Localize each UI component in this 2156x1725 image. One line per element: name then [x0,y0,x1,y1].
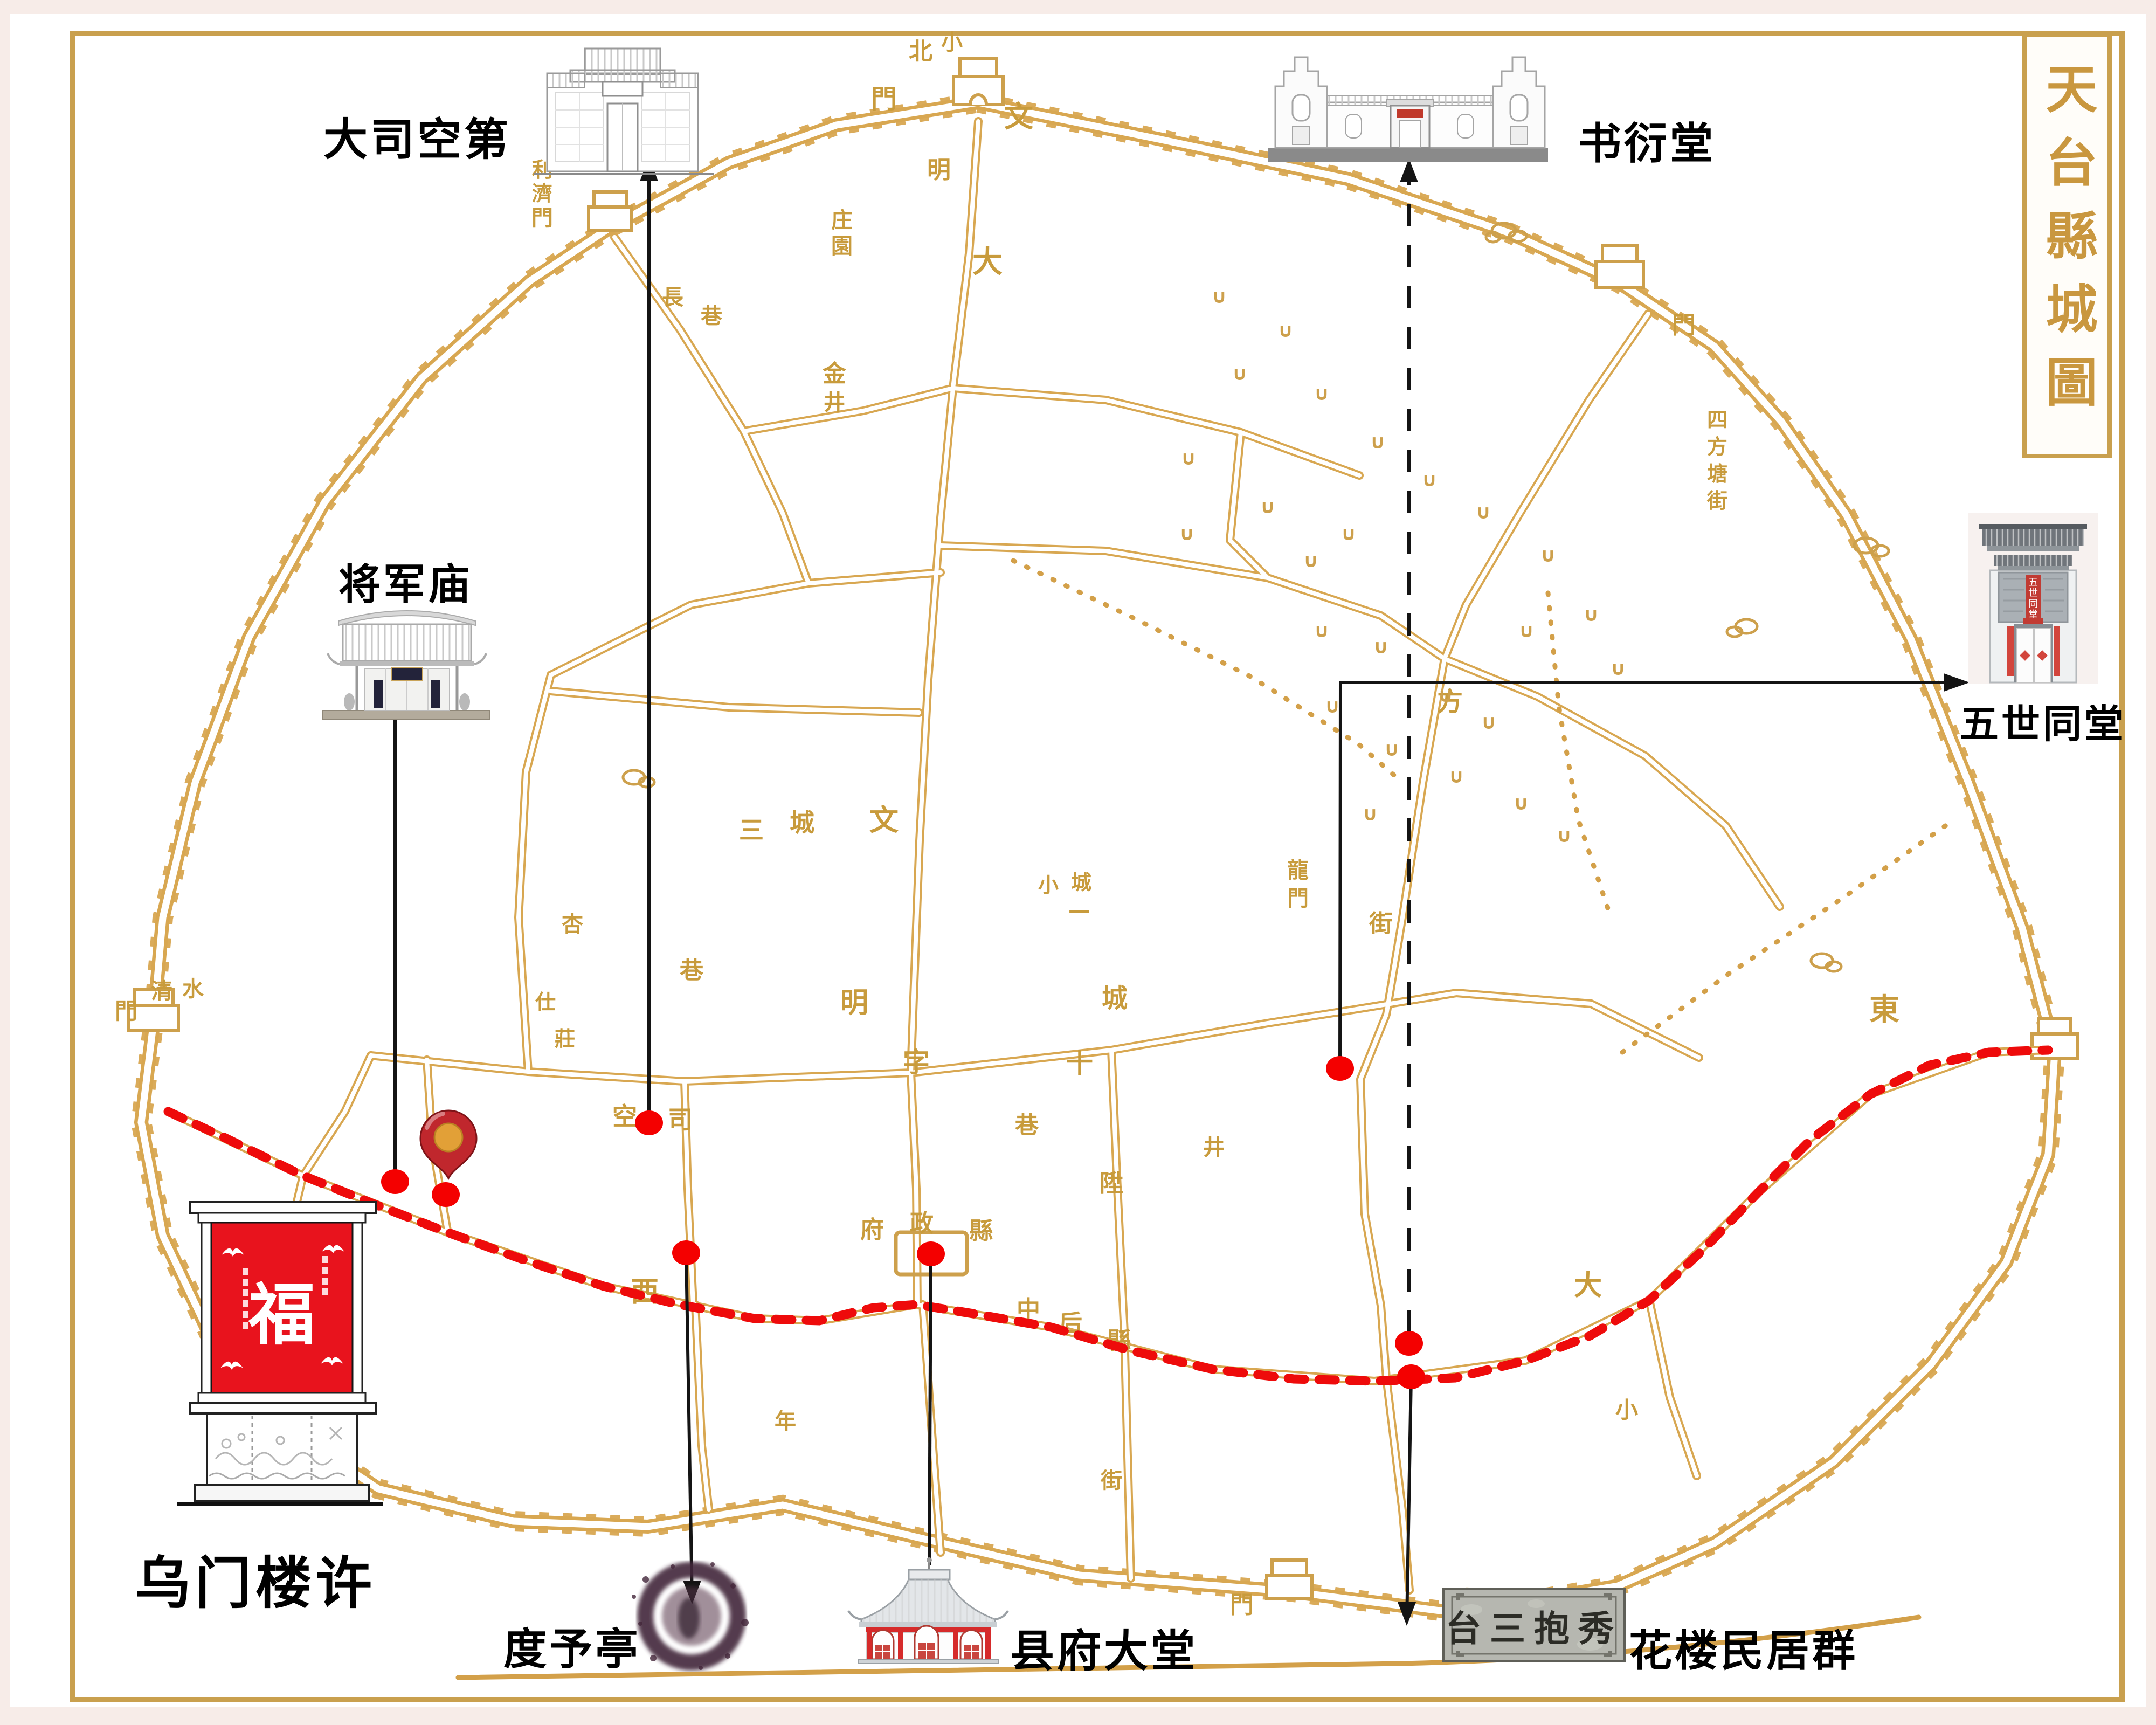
map-symbol-u: ∪ [1540,544,1556,567]
map-page: 文小北門明大利濟門巷長金井清水門杏仕莊巷空司三城文明字十城小城一陞后縣巷西年府政… [0,0,2156,1725]
label-jiangjunmiao: 将军庙 [338,551,473,611]
label-duyuting: 度予亭 [503,1614,641,1677]
map-street-character: 水 [182,976,204,1002]
map-street-character: 北 [909,38,932,65]
map-street-character: 府 [860,1216,884,1244]
poi-dot-duyuting[interactable] [672,1240,700,1265]
plaque-character: 五 [2028,577,2038,588]
wushitongtang-plaque-text: 五世同堂 [2028,577,2038,620]
map-street-character: 大 [1574,1269,1602,1302]
map-street-character: 門 [531,205,553,231]
map-street-character: 四 [1707,408,1727,432]
poi-dot-hualou[interactable] [1397,1364,1425,1389]
map-street-character: 龍 [1287,858,1309,883]
map-symbol-u: ∪ [1303,550,1318,572]
map-street-character: 門 [1287,886,1309,911]
map-symbol-u: ∪ [1260,496,1275,518]
map-street-character: 十 [1066,1047,1093,1079]
map-street-character: 門 [871,84,897,114]
wushitongtang-illustration: 五世同堂 [1968,513,2098,684]
map-symbol-u: ∪ [1448,765,1464,788]
map-symbol-u: ∪ [1232,363,1247,385]
map-symbol-u: ∪ [1610,658,1626,680]
poi-dot-wushitongtang[interactable] [1326,1056,1354,1081]
label-hualou: 花楼民居群 [1629,1616,1858,1679]
map-symbol-u: ∪ [1370,431,1385,453]
map-street-character: 庄 [831,208,853,233]
map-symbol-u: ∪ [1373,636,1388,658]
map-street-character: 塘 [1707,461,1727,486]
label-wushitongtang: 五世同堂 [1960,692,2126,749]
northeast-gate-icon [1596,245,1643,287]
label-dasikongdi: 大司空第 [323,103,511,168]
poi-dot-wumenlouxu[interactable] [432,1182,460,1207]
poi-dot-jiangjunmiao[interactable] [381,1169,409,1194]
south-gate-icon [1267,1560,1312,1599]
map-street-character: 政 [910,1210,934,1237]
map-symbol-u: ∪ [1314,383,1329,405]
connector-line [929,1255,931,1565]
map-street-character: 仕 [535,990,556,1014]
map-street-character: 陞 [1100,1170,1123,1197]
map-street-character: 一 [1069,900,1089,924]
map-street-character: 縣 [969,1217,993,1245]
map-symbol-u: ∪ [1481,712,1496,734]
map-street-character: 杏 [562,912,583,937]
map-canvas: 文小北門明大利濟門巷長金井清水門杏仕莊巷空司三城文明字十城小城一陞后縣巷西年府政… [0,0,2156,1725]
plaque-character: 同 [2028,598,2038,610]
map-symbol-u: ∪ [1421,469,1437,491]
map-symbol-u: ∪ [1513,792,1529,815]
map-symbol-u: ∪ [1475,501,1491,523]
label-xianfudatang: 县府大堂 [1010,1615,1198,1679]
map-symbol-u: ∪ [1362,803,1378,825]
map-street-character: 長 [662,285,684,310]
label-wumenlouxu: 乌门楼许 [135,1537,376,1619]
map-street-character: 空 [612,1102,637,1131]
banner-fu-character: 福 [248,1276,315,1354]
map-street-character: 文 [1004,99,1033,134]
map-street-character: 方 [1707,434,1727,459]
hualou-plaque-illustration: 台三抱秀 [1443,1589,1625,1661]
map-symbol-u: ∪ [1211,286,1227,308]
map-street-character: 明 [840,986,868,1019]
map-street-character: 門 [1672,312,1696,339]
map-street-character: 小 [1038,873,1059,897]
map-street-character: 門 [115,998,137,1024]
map-street-character: 城 [790,808,814,837]
map-street-character: 巷 [679,957,704,984]
map-symbol-u: ∪ [1438,685,1453,707]
poi-dot-dasikongdi[interactable] [635,1110,663,1135]
map-street-character: 井 [1203,1135,1225,1160]
map-symbol-u: ∪ [1324,695,1340,717]
map-symbol-u: ∪ [1583,604,1599,626]
poi-dot-shuyantang[interactable] [1395,1331,1423,1356]
map-street-character: 年 [775,1409,796,1434]
north-gate-icon [953,58,1003,105]
map-symbol-u: ∪ [1556,825,1572,847]
map-symbol-u: ∪ [1179,523,1194,545]
map-street-character: 城 [1071,870,1091,894]
map-title-box: 天台縣城圖 [2022,32,2112,458]
label-shuyantang: 书衍堂 [1578,109,1716,171]
map-street-character: 大 [972,244,1003,280]
map-street-character: 濟 [532,181,552,205]
wumenlouxu-illustration: 福 [177,1202,383,1504]
map-street-character: 小 [941,30,963,55]
map-street-character: 城 [1102,983,1128,1013]
map-street-character: 井 [824,390,845,415]
map-street-character: 園 [831,233,853,259]
map-street-character: 巷 [700,303,723,329]
map-symbol-u: ∪ [1277,320,1293,342]
map-street-character: 莊 [555,1026,575,1051]
map-street-character: 東 [1869,992,1899,1027]
map-street-character: 明 [927,156,951,184]
map-title: 天台縣城圖 [2027,62,2107,429]
plaque-character: 世 [2028,588,2038,599]
map-street-character: 字 [903,1046,930,1078]
map-street-character: 門 [1230,1591,1254,1619]
map-street-character: 文 [869,803,899,837]
map-symbol-u: ∪ [1518,620,1534,642]
map-street-character: 司 [668,1105,693,1134]
map-symbol-u: ∪ [1384,739,1399,761]
hualou-plaque-text: 台三抱秀 [1446,1607,1622,1650]
northwest-gate-icon [589,192,632,231]
jiangjunmiao-illustration [322,611,489,719]
map-street-character: 街 [1100,1468,1122,1493]
map-symbol-u: ∪ [1180,447,1196,470]
map-street-character: 金 [822,360,847,388]
map-street-character: 街 [1369,910,1393,937]
map-street-character: 小 [1615,1397,1638,1423]
map-street-character: 街 [1706,488,1727,513]
map-street-character: 巷 [1014,1112,1039,1139]
map-street-character: 三 [739,816,764,845]
poi-dot-xianfudatang[interactable] [917,1241,945,1266]
map-symbol-u: ∪ [1314,620,1329,642]
map-street-character: 清 [151,978,172,1004]
map-symbol-u: ∪ [1340,523,1356,545]
